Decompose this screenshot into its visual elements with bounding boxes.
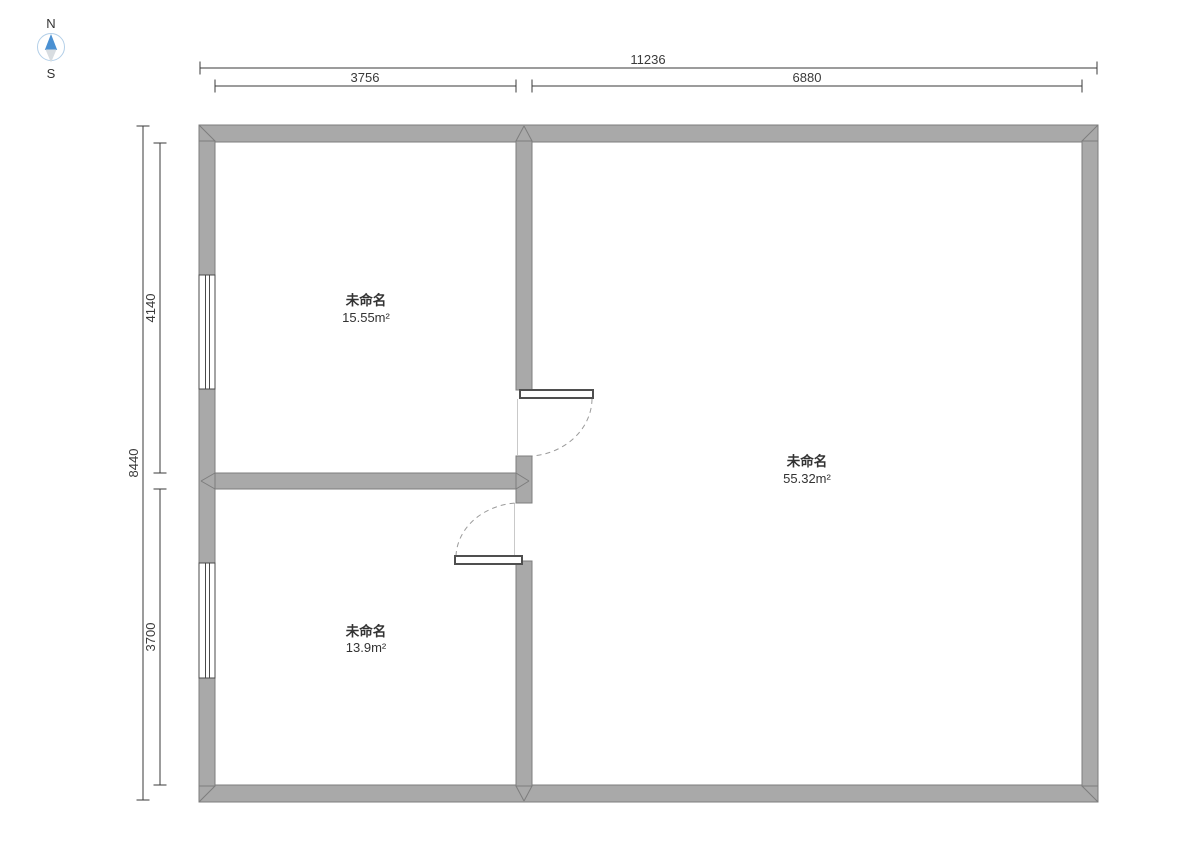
wall-interior-horizontal[interactable] bbox=[215, 473, 516, 489]
compass-north-needle bbox=[45, 34, 57, 50]
dim-label-top-total: 11236 bbox=[630, 52, 665, 67]
dim-label-top-left: 3756 bbox=[351, 70, 380, 85]
room-2: 未命名 55.32m² bbox=[533, 143, 1081, 784]
wall-interior-vertical-middle[interactable] bbox=[516, 456, 532, 503]
wall-exterior-right[interactable] bbox=[1082, 141, 1098, 786]
window-lower-left[interactable] bbox=[199, 563, 215, 678]
room-3: 未命名 13.9m² bbox=[216, 490, 515, 784]
room-1: 未命名 15.55m² bbox=[216, 143, 515, 472]
wall-exterior-bottom[interactable] bbox=[199, 785, 1098, 802]
dim-label-left-lower: 3700 bbox=[143, 623, 158, 652]
wall-interior-vertical-lower[interactable] bbox=[516, 561, 532, 786]
room-1-name: 未命名 bbox=[346, 292, 387, 308]
room-3-area-label: 13.9m² bbox=[346, 640, 387, 655]
room-1-area-label: 15.55m² bbox=[342, 310, 390, 325]
wall-exterior-left[interactable] bbox=[199, 141, 215, 786]
window-frame[interactable] bbox=[199, 563, 215, 678]
compass-south-needle bbox=[46, 50, 57, 63]
dim-label-left-total: 8440 bbox=[126, 449, 141, 478]
wall-exterior-top[interactable] bbox=[199, 125, 1098, 142]
wall-interior-vertical-upper[interactable] bbox=[516, 141, 532, 390]
dim-label-top-right: 6880 bbox=[793, 70, 822, 85]
compass: N S bbox=[38, 16, 65, 81]
window-frame[interactable] bbox=[199, 275, 215, 389]
floor-plan-canvas: N S 11236 3756 6880 8440 4140 3700 bbox=[0, 0, 1191, 842]
room-3-name: 未命名 bbox=[346, 623, 387, 639]
window-upper-left[interactable] bbox=[199, 275, 215, 389]
dim-label-left-upper: 4140 bbox=[143, 294, 158, 323]
compass-south-label: S bbox=[47, 66, 56, 81]
room-2-area-label: 55.32m² bbox=[783, 471, 831, 486]
compass-north-label: N bbox=[46, 16, 55, 31]
room-2-name: 未命名 bbox=[787, 453, 828, 469]
